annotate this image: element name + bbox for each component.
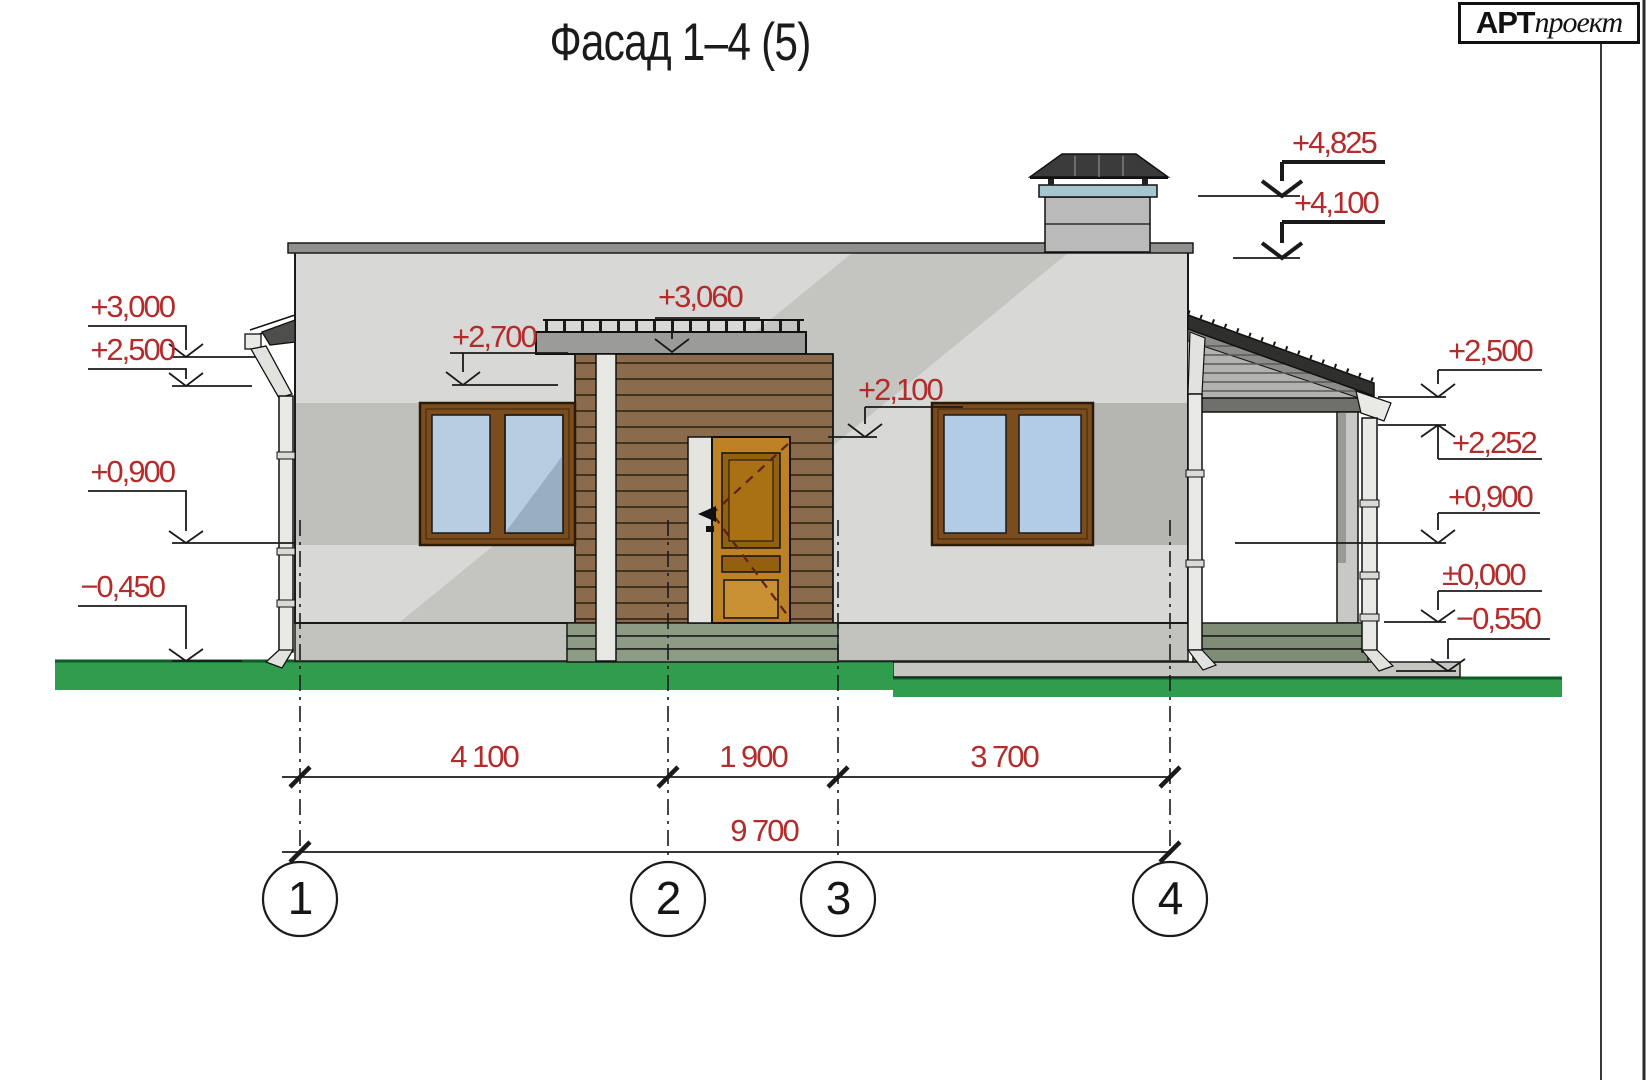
logo: АРТпроект — [1458, 2, 1640, 44]
porch — [1186, 312, 1393, 671]
drawing-sheet: Фасад 1–4 (5) АРТпроект +3,000 +2,500 +0… — [0, 0, 1646, 1080]
drawing-title: Фасад 1–4 (5) — [480, 16, 880, 69]
axis-number-1: 1 — [265, 875, 335, 921]
axis-number-4: 4 — [1135, 875, 1205, 921]
elevation-mark-left-3000: +3,000 — [52, 291, 174, 322]
elevation-mark-right-0000: ±0,000 — [1442, 559, 1525, 590]
dimension-span-1-2: 4 100 — [414, 741, 554, 772]
elevation-mark-center-2100: +2,100 — [858, 374, 942, 405]
chimney — [1030, 154, 1168, 252]
dimension-span-2-3: 1 900 — [683, 741, 823, 772]
entrance-post — [596, 354, 616, 661]
axis-number-2: 2 — [633, 875, 703, 921]
elevation-mark-left-m0450: −0,450 — [42, 571, 164, 602]
sheet-border — [1601, 0, 1644, 1080]
elevation-mark-right-4100: +4,100 — [1294, 187, 1378, 218]
elevation-mark-right-m0550: −0,550 — [1456, 603, 1540, 634]
elevation-mark-center-2700: +2,700 — [452, 321, 536, 352]
logo-bold-text: АРТ — [1476, 5, 1535, 41]
elevation-mark-right-2500: +2,500 — [1448, 335, 1532, 366]
elevation-mark-left-2500: +2,500 — [52, 334, 174, 365]
elevation-mark-right-0900: +0,900 — [1448, 481, 1532, 512]
dimension-total: 9 700 — [694, 815, 834, 846]
axis-number-3: 3 — [803, 875, 873, 921]
elevation-mark-right-4825: +4,825 — [1292, 127, 1376, 158]
window-right — [932, 403, 1093, 545]
logo-italic-text: проект — [1534, 6, 1622, 40]
elevation-mark-left-0900: +0,900 — [52, 456, 174, 487]
left-eave-downspout — [245, 315, 295, 668]
window-left — [420, 403, 575, 545]
dimension-span-3-4: 3 700 — [934, 741, 1074, 772]
elevation-mark-right-2252: +2,252 — [1452, 427, 1536, 458]
elevation-mark-center-3060: +3,060 — [658, 281, 742, 312]
front-door — [688, 437, 790, 623]
